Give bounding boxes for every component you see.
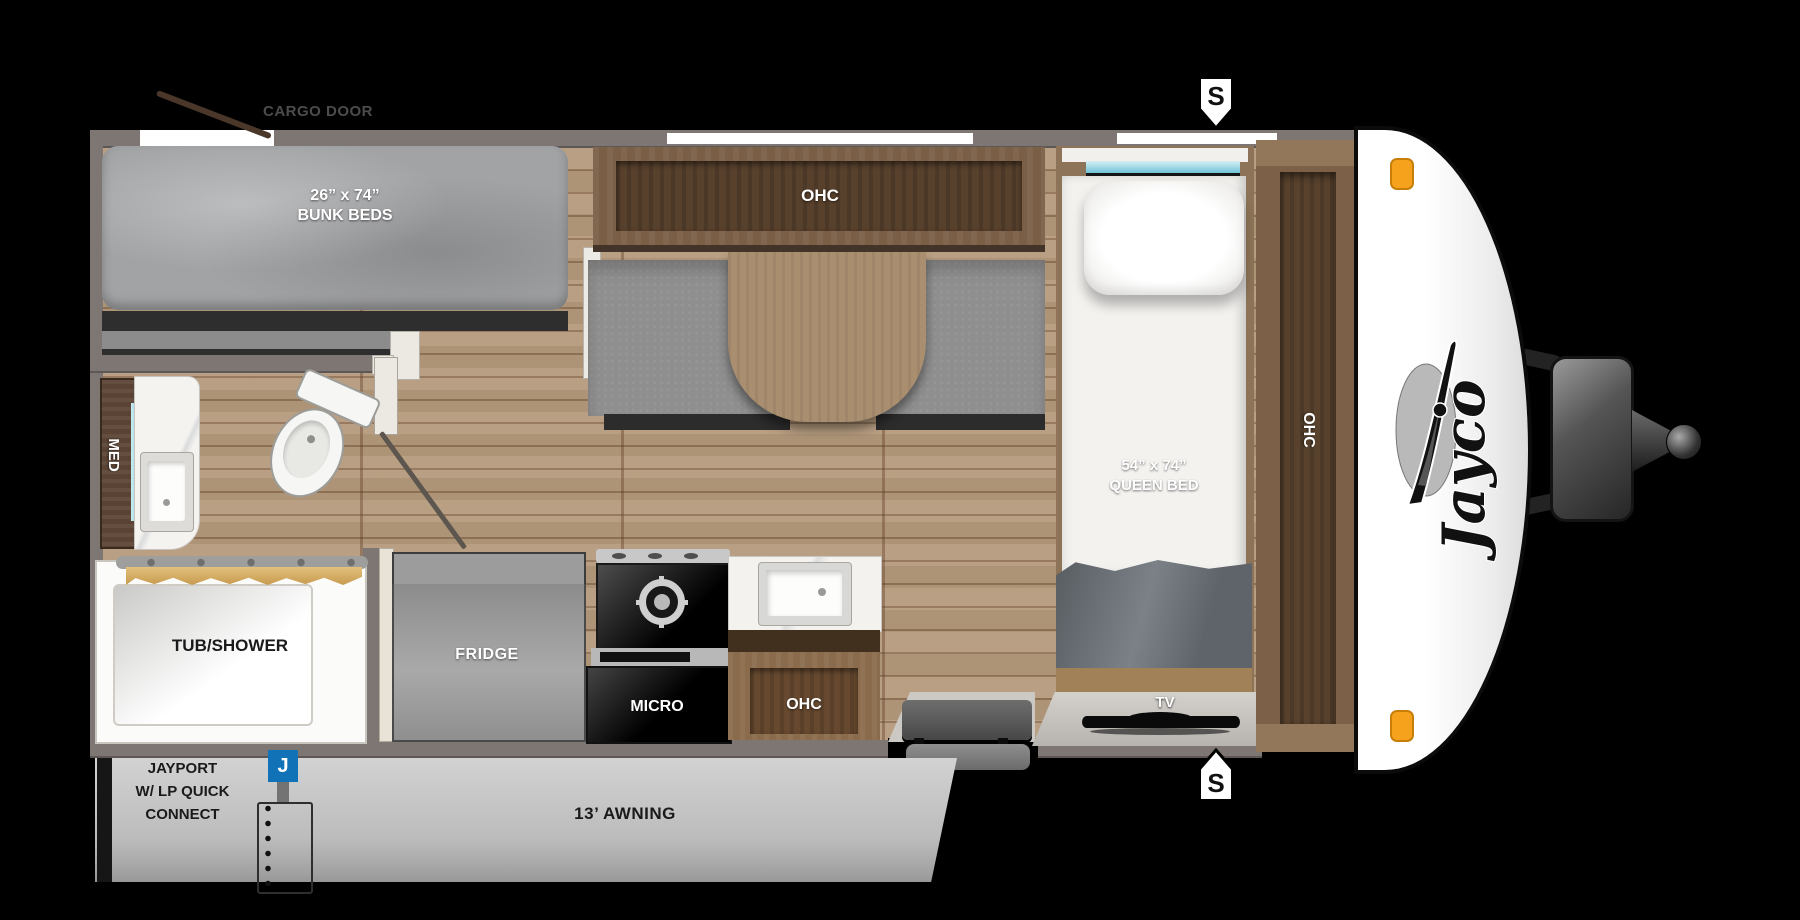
wardrobe-top-face (1256, 140, 1358, 166)
tub-shower-label: TUB/SHOWER (105, 636, 355, 656)
microwave-label: MICRO (586, 698, 728, 716)
marker-light-icon (1390, 710, 1414, 742)
queen-size-text: 54” x 74” (1062, 456, 1246, 476)
speaker-marker-bottom: S (1198, 748, 1234, 802)
bathroom-door-jamb (374, 357, 398, 435)
kitchen-cabinet-face (728, 630, 880, 652)
speaker-bottom-letter: S (1207, 768, 1224, 798)
stove-burner-icon (654, 594, 670, 610)
kitchen-ohc-label: OHC (728, 696, 880, 714)
stove-vent-slot-icon (684, 553, 698, 559)
queen-headboard-window (1086, 161, 1240, 176)
jayco-logo: Jayco (1388, 290, 1522, 570)
wardrobe-ohc-label: OHC (1296, 400, 1320, 460)
jayport-stem (277, 782, 289, 804)
fridge-label: FRIDGE (392, 646, 582, 664)
dinette-ohc-label: OHC (720, 186, 920, 206)
logo-text: Jayco (1430, 379, 1498, 562)
queen-blanket (1056, 560, 1252, 670)
jayport-line1: JAYPORT (95, 757, 270, 780)
kitchen-sink-drain-icon (818, 588, 826, 596)
cargo-door-label: CARGO DOOR (228, 103, 408, 120)
bathroom-sink-basin (147, 461, 185, 521)
dinette-base-right (876, 414, 1045, 430)
tv-label: TV (1135, 694, 1195, 711)
jayport-line3: CONNECT (95, 803, 270, 826)
bathroom-wall-top (90, 355, 372, 373)
oven-handle-slot (600, 652, 690, 662)
tv-icon (1082, 716, 1240, 728)
bunk-lower-edge (102, 311, 568, 331)
awning-label: 13’ AWNING (465, 804, 785, 824)
hitch-coupler-icon (1666, 424, 1702, 460)
jayport-label: JAYPORT W/ LP QUICK CONNECT (95, 757, 270, 826)
entry-step-upper (902, 700, 1032, 740)
stove-vent-slot-icon (648, 553, 662, 559)
bunk-name-text: BUNK BEDS (240, 206, 450, 226)
queen-footboard (1056, 668, 1252, 692)
bunk-beds-mattress (102, 146, 568, 310)
queen-bed-label: 54” x 74” QUEEN BED (1062, 456, 1246, 496)
speaker-top-letter: S (1207, 81, 1224, 111)
med-cabinet-label: MED (102, 422, 126, 488)
bunk-size-text: 26” x 74” (240, 186, 450, 206)
bunk-beds-label: 26” x 74” BUNK BEDS (240, 186, 450, 226)
dinette-table (728, 252, 926, 422)
queen-pillow (1084, 181, 1244, 295)
speaker-marker-top: S (1198, 76, 1234, 130)
propane-battery-box (1550, 356, 1634, 522)
jayport-icon: J (268, 750, 298, 782)
fridge-top (392, 552, 586, 588)
stove-vent-slot-icon (612, 553, 626, 559)
dinette-base-left (604, 414, 790, 430)
marker-light-icon (1390, 158, 1414, 190)
floorplan-canvas: CARGO DOOR 26” x 74” BUNK BEDS MED TUB/S… (0, 0, 1800, 920)
queen-window (1117, 133, 1277, 144)
wardrobe-bottom-face (1256, 724, 1358, 752)
kitchen-sink-basin (766, 570, 842, 616)
jayport-line2: W/ LP QUICK (95, 780, 270, 803)
bathroom-sink-drain-icon (163, 499, 170, 506)
bunk-lower-mattress (102, 331, 390, 349)
tv-shadow (1090, 728, 1230, 735)
queen-headboard (1062, 148, 1248, 162)
dinette-window (667, 133, 973, 144)
queen-name-text: QUEEN BED (1062, 476, 1246, 496)
